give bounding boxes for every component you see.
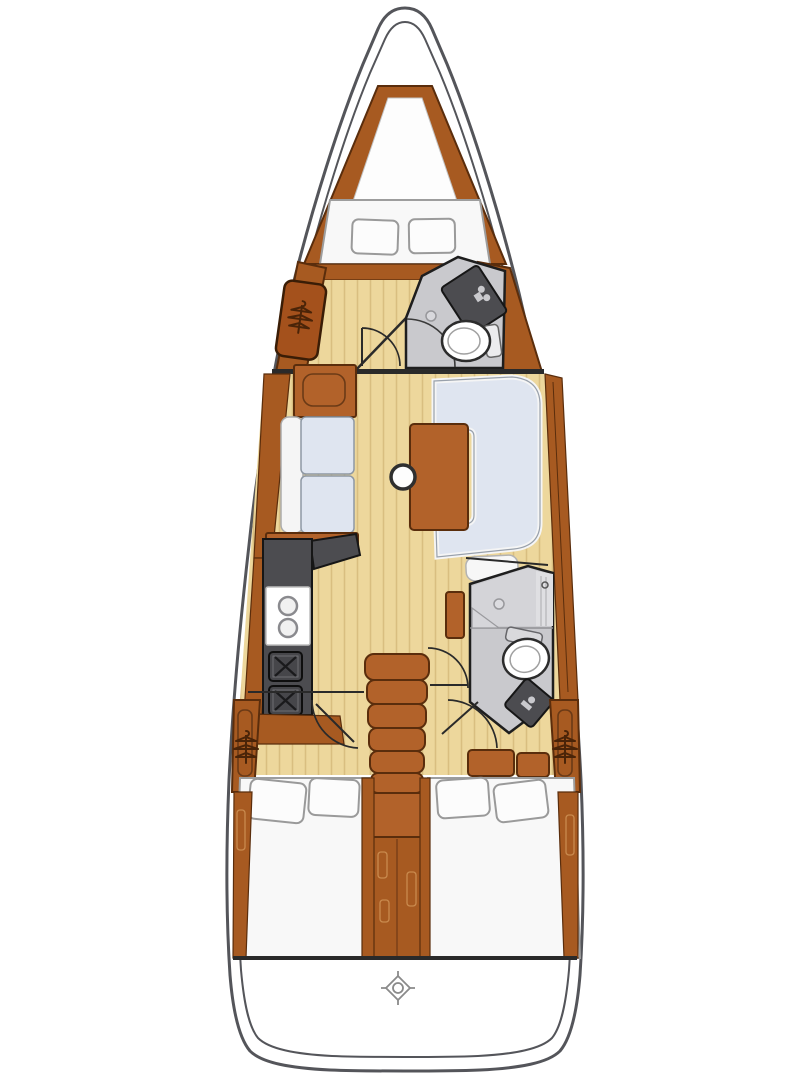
port-settee-backrest [281, 417, 303, 533]
cabin-cabinet [468, 750, 514, 776]
stair-step [371, 773, 423, 793]
berth-side-trim [362, 778, 374, 958]
shower-panel [536, 571, 553, 626]
drain-icon [494, 599, 504, 609]
mast-post [391, 465, 415, 489]
stove-burner-icon [269, 652, 302, 681]
sink-basin-icon [279, 619, 297, 637]
forward-head-toilet [442, 321, 502, 361]
stair-step [369, 728, 425, 751]
stair-step [370, 751, 424, 773]
port-settee-cushion [301, 476, 354, 533]
cabin-cabinet [517, 753, 549, 777]
pillow [409, 219, 456, 254]
sailboat-floorplan [0, 0, 810, 1080]
salon-table [410, 424, 468, 530]
transom-bulkhead [233, 956, 577, 960]
engine-box [368, 793, 426, 837]
stove-burner-icon [269, 686, 302, 715]
head-side-seat [446, 592, 464, 638]
drain-icon [426, 311, 436, 321]
companionway [365, 654, 429, 958]
pillow [308, 778, 360, 818]
stair-step [368, 704, 426, 728]
sink-basin-icon [279, 597, 297, 615]
floorplan-stage [0, 0, 810, 1080]
berth-side-trim [420, 778, 430, 958]
pillow [351, 219, 398, 255]
stair-step [365, 654, 429, 680]
v-berth [320, 200, 490, 264]
pillow [436, 777, 491, 819]
pillow [247, 778, 307, 824]
stair-step [367, 680, 427, 704]
forward-hanging-locker [275, 280, 327, 361]
pillow [493, 779, 549, 823]
port-settee-cushion [301, 417, 354, 474]
